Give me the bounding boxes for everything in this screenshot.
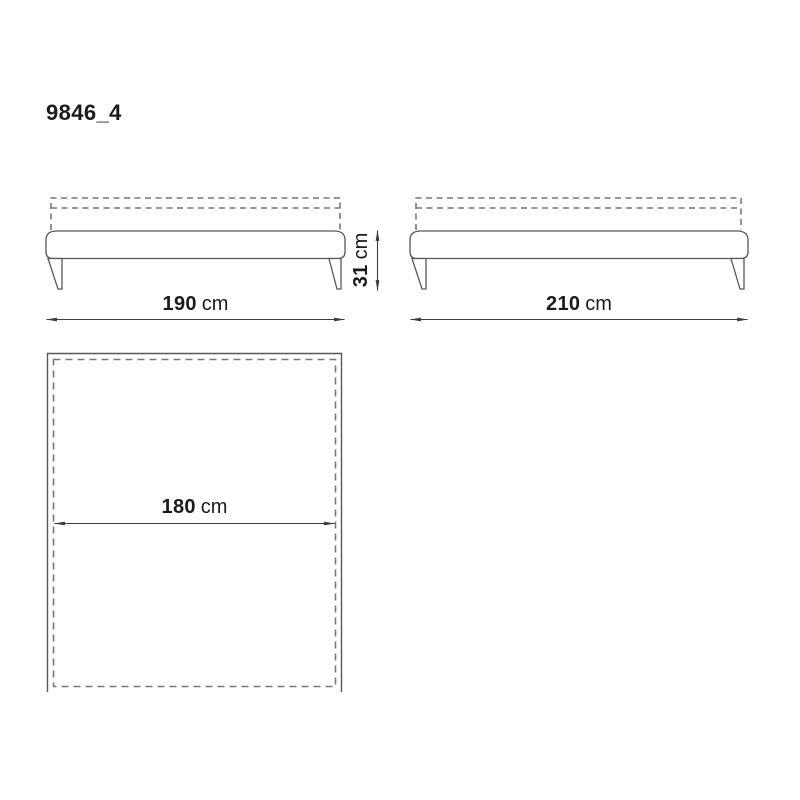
front-width-unit: cm <box>202 293 229 315</box>
front-height-unit: cm <box>350 233 372 260</box>
bed-dimension-drawing <box>0 0 800 800</box>
front-right-leg <box>329 259 341 290</box>
front-height-dimension-label: 31cm <box>351 233 371 288</box>
side-width-value: 210 <box>546 293 580 315</box>
side-mattress-dashed-outline <box>416 198 741 230</box>
top-view <box>48 354 342 693</box>
top-width-value: 180 <box>162 496 196 518</box>
front-bed-frame <box>46 231 345 259</box>
side-left-leg <box>412 259 426 290</box>
technical-drawing-page: 9846_4 <box>0 0 800 800</box>
front-left-leg <box>48 259 62 290</box>
top-frame-outline <box>48 354 342 693</box>
side-width-dimension-label: 210cm <box>410 294 748 314</box>
top-width-unit: cm <box>201 496 228 518</box>
side-bed-frame <box>410 231 748 259</box>
front-height-value: 31 <box>350 264 372 287</box>
top-width-dimension-label: 180cm <box>53 497 336 517</box>
front-width-dimension-label: 190cm <box>46 294 345 314</box>
side-width-unit: cm <box>585 293 612 315</box>
front-mattress-dashed-outline <box>51 198 340 230</box>
front-width-value: 190 <box>163 293 197 315</box>
side-right-leg <box>731 259 744 290</box>
